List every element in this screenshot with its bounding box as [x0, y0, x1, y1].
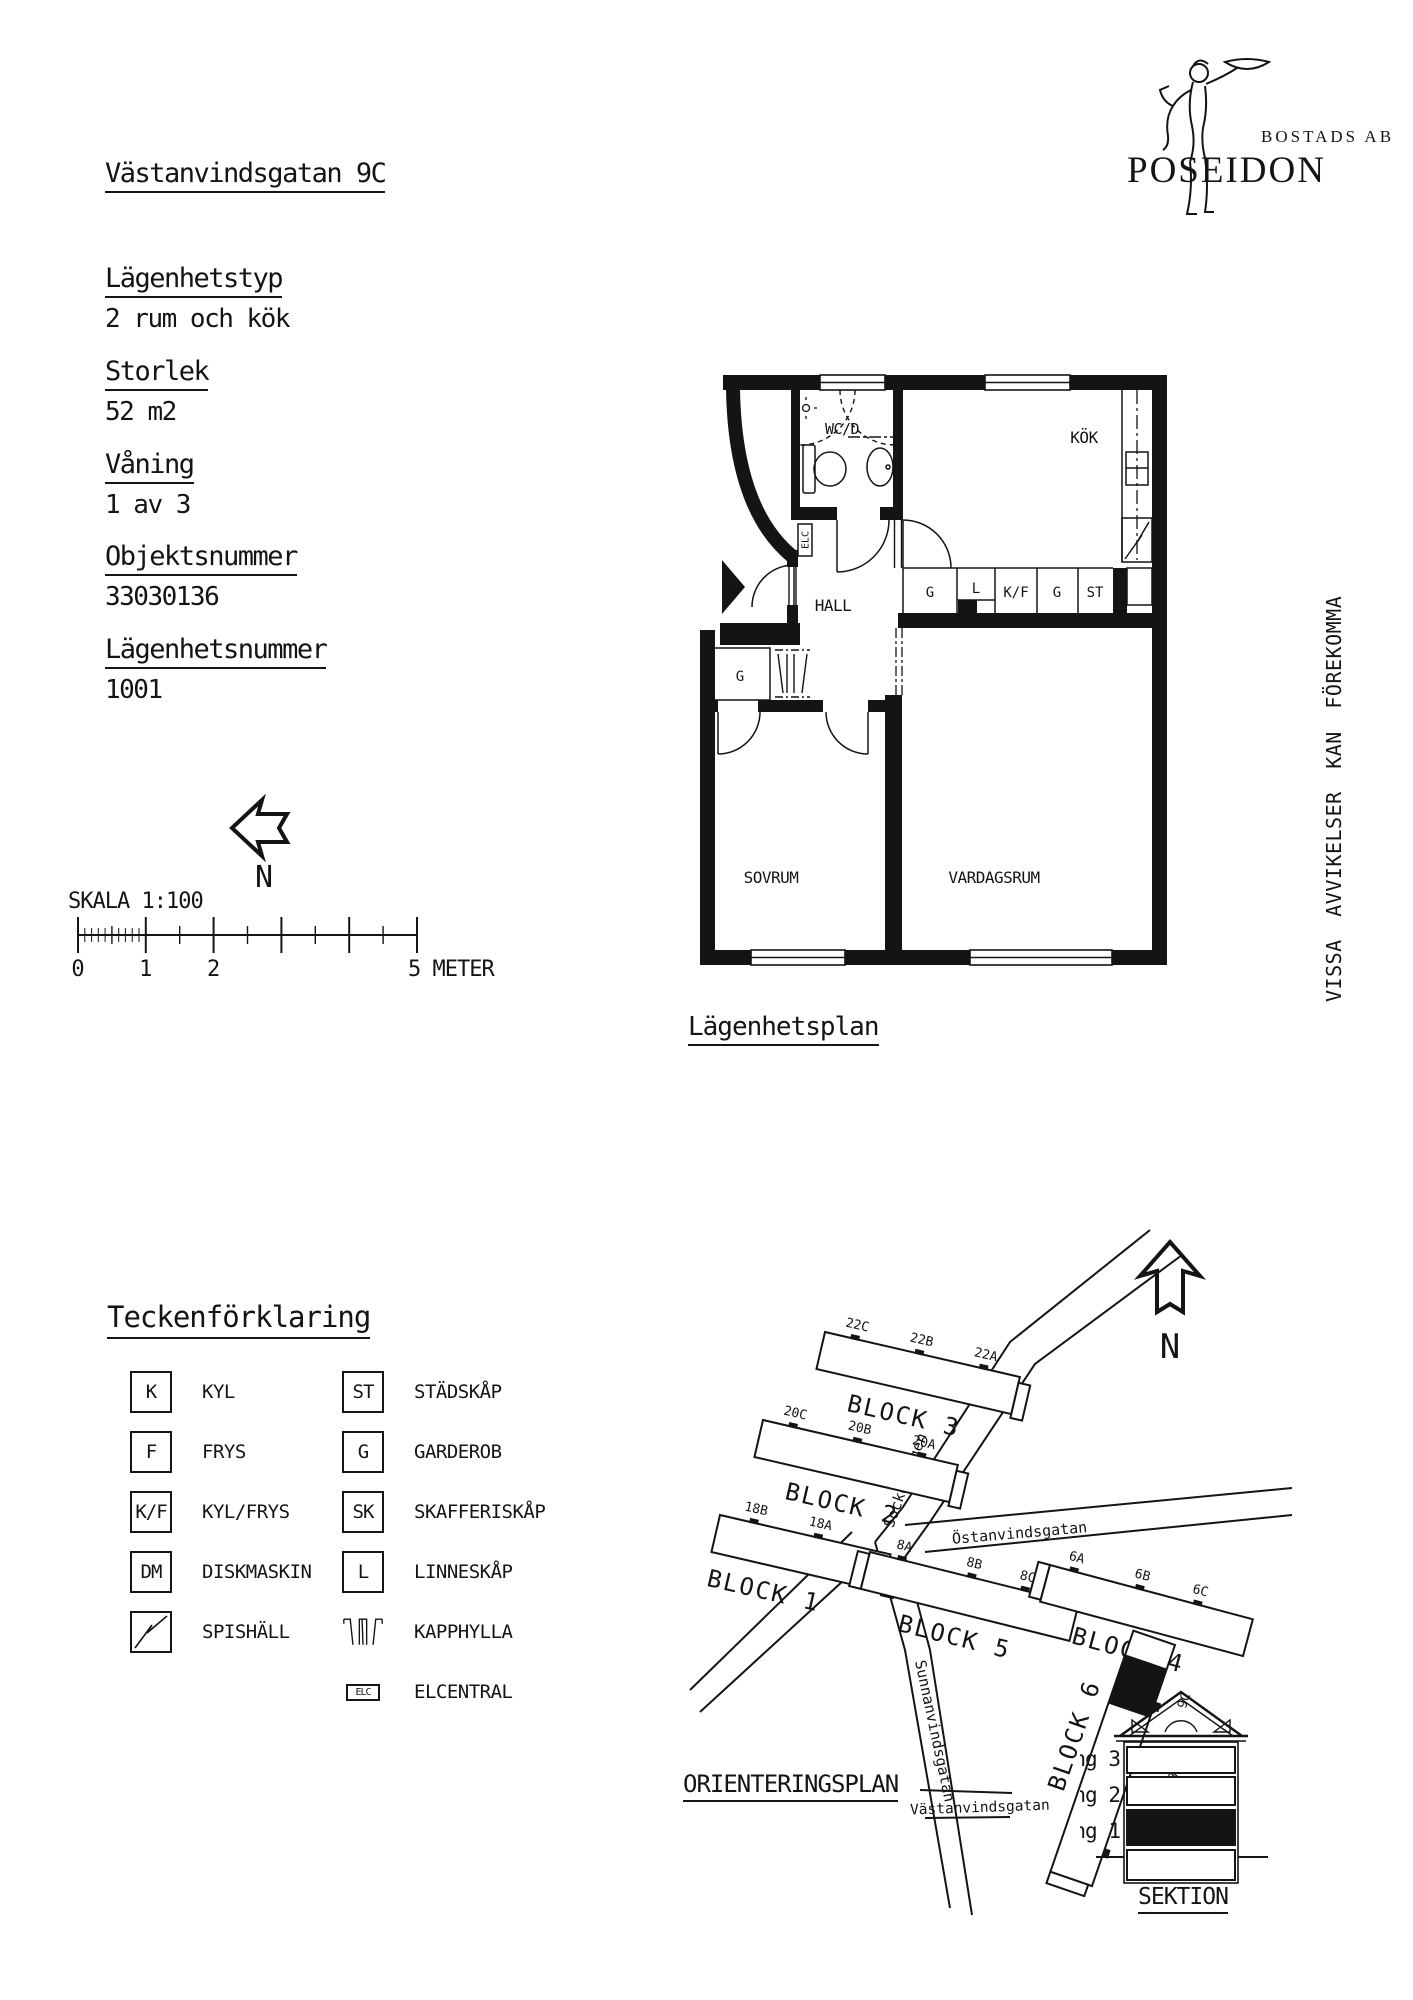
legend-item-label: SPISHÄLL [202, 1621, 290, 1643]
legend-item-label: STÄDSKÅP [414, 1381, 502, 1403]
field-label: Storlek [105, 356, 208, 391]
plan-caption-wrap: Lägenhetsplan [688, 1012, 879, 1046]
scale-bar-group: N SKALA 1:100 0 1 2 5 METER [50, 780, 520, 995]
entrance-label: 22B [908, 1330, 934, 1350]
kitchen-fittings [1122, 390, 1152, 605]
highlighted-floor-1 [1127, 1810, 1235, 1845]
section-roof [1114, 1692, 1248, 1741]
north-arrow-map-icon [1140, 1242, 1200, 1312]
elc-label: ELC [801, 531, 812, 549]
legend-key-box: G [342, 1431, 384, 1473]
entrance-label: 18B [743, 1500, 769, 1520]
legend-key-box: ST [342, 1371, 384, 1413]
field-value: 2 rum och kök [105, 304, 289, 334]
legend-item-label: LINNESKÅP [414, 1561, 512, 1583]
legend-item-label: FRYS [202, 1441, 246, 1463]
legend-item-kyl: K KYL [130, 1371, 311, 1413]
north-letter-map: N [1160, 1327, 1180, 1367]
legend-item-linneskap: L LINNESKÅP [342, 1551, 545, 1593]
entrance-label: 22A [973, 1345, 999, 1365]
curved-wall [733, 389, 793, 557]
toilet-icon [803, 445, 846, 493]
field-label: Våning [105, 449, 194, 484]
closet-label-g1: G [926, 585, 934, 601]
field-label: Lägenhetstyp [105, 263, 282, 298]
hat-shelf-icon [775, 650, 810, 697]
legend-item-stadskap: ST STÄDSKÅP [342, 1371, 545, 1413]
floor-label-1: Våning 1 [1080, 1818, 1120, 1843]
legend-key-box: K [130, 1371, 172, 1413]
entrance-label: 6C [1191, 1582, 1210, 1601]
scale-tick-5-meter: 5 METER [408, 957, 495, 982]
legend-item-garderob: G GARDEROB [342, 1431, 545, 1473]
closet-label-st: ST [1087, 585, 1104, 601]
room-label-hall: HALL [815, 596, 852, 615]
field-lagenhetstyp: Lägenhetstyp 2 rum och kök [105, 263, 289, 334]
closet-label-g2: G [1053, 585, 1061, 601]
legend-key-box: K/F [130, 1491, 172, 1533]
legend-item-label: GARDEROB [414, 1441, 502, 1463]
logo-poseidon: POSEIDON [1127, 150, 1326, 191]
address-text: Västanvindsgatan 9C [105, 158, 385, 193]
room-label-kitchen: KÖK [1070, 428, 1098, 447]
field-value: 33030136 [105, 582, 297, 612]
legend-key-box: SK [342, 1491, 384, 1533]
map-caption-wrap: ORIENTERINGSPLAN [683, 1770, 898, 1802]
section-caption-wrap: SEKTION [1138, 1884, 1228, 1914]
section-floors [1096, 1742, 1268, 1883]
room-label-living: VARDAGSRUM [948, 868, 1039, 887]
field-label: Objektsnummer [105, 541, 297, 576]
legend-item-frys: F FRYS [130, 1431, 311, 1473]
floorplan-document-page: Västanvindsgatan 9C Lägenhetstyp 2 rum o… [0, 0, 1413, 2000]
legend-item-label: ELCENTRAL [414, 1681, 512, 1703]
field-label: Lägenhetsnummer [105, 634, 326, 669]
room-label-bedroom: SOVRUM [744, 868, 799, 887]
entry-arrow-icon [722, 560, 745, 614]
field-vaning: Våning 1 av 3 [105, 449, 194, 520]
logo-bostads-ab: BOSTADS AB [1261, 127, 1394, 146]
section-caption: SEKTION [1138, 1884, 1228, 1914]
entrance-label: 6B [1133, 1567, 1152, 1586]
entrance-label: 18A [807, 1514, 833, 1534]
scale-ruler [78, 917, 417, 953]
legend-key-box: L [342, 1551, 384, 1593]
poseidon-logo: BOSTADS AB POSEIDON [1113, 46, 1413, 226]
legend-item-spishall: SPISHÄLL [130, 1611, 311, 1653]
legend-left-column: K KYL F FRYS K/F KYL/FRYS DM DISKMASKIN … [130, 1371, 311, 1671]
entrance-label: 20C [782, 1404, 808, 1424]
scale-tick-2: 2 [207, 957, 220, 982]
sink-icon [867, 448, 893, 486]
legend-item-label: KYL [202, 1381, 235, 1403]
entrance-label: 8A [895, 1537, 914, 1555]
closet-label-l: L [972, 581, 980, 597]
field-value: 52 m2 [105, 397, 208, 427]
disclaimer-note: VISSA AVVIKELSER KAN FÖREKOMMA [1322, 634, 1346, 1002]
field-value: 1001 [105, 675, 326, 705]
field-storlek: Storlek 52 m2 [105, 356, 208, 427]
stove-symbol-icon [130, 1611, 172, 1653]
field-lagenhetsnummer: Lägenhetsnummer 1001 [105, 634, 326, 705]
map-block-3: 22C 22B 22A BLOCK 3 [807, 1312, 1036, 1456]
map-caption: ORIENTERINGSPLAN [683, 1770, 898, 1802]
entrance-label: 22C [844, 1316, 870, 1336]
legend-item-label: SKAFFERISKÅP [414, 1501, 545, 1523]
room-label-wc: WC/D [825, 420, 860, 438]
entrance-label: 8B [965, 1555, 984, 1573]
legend-item-label: KYL/FRYS [202, 1501, 290, 1523]
opening-marks [896, 628, 902, 695]
kitchen-sink-icon [1126, 452, 1148, 485]
field-value: 1 av 3 [105, 490, 194, 520]
hat-shelf-symbol-icon [342, 1611, 384, 1653]
field-objektsnummer: Objektsnummer 33030136 [105, 541, 297, 612]
legend-item-kapphylla: KAPPHYLLA [342, 1611, 545, 1653]
legend-item-label: DISKMASKIN [202, 1561, 311, 1583]
scale-tick-1: 1 [139, 957, 152, 982]
wc-interior [795, 390, 903, 493]
legend-key-box: F [130, 1431, 172, 1473]
floor-label-2: Våning 2 [1080, 1782, 1120, 1807]
north-arrow-plan-icon [232, 800, 287, 856]
scale-label: SKALA 1:100 [68, 889, 203, 914]
entrance-label: 6A [1067, 1549, 1086, 1568]
floor-label-3: Våning 3 [1080, 1746, 1120, 1771]
legend-item-elcentral: ELC ELCENTRAL [342, 1671, 545, 1713]
elc-symbol: ELC [342, 1671, 384, 1713]
legend-item-diskmaskin: DM DISKMASKIN [130, 1551, 311, 1593]
legend-item-kylfrys: K/F KYL/FRYS [130, 1491, 311, 1533]
legend-key-box: DM [130, 1551, 172, 1593]
floor-plan: ELC WC/D KÖK HALL SOVRUM VARDAGSRUM G L … [690, 345, 1180, 975]
plan-caption: Lägenhetsplan [688, 1012, 879, 1046]
north-letter-plan: N [255, 860, 273, 895]
legend-right-column: ST STÄDSKÅP G GARDEROB SK SKAFFERISKÅP L… [342, 1371, 545, 1731]
elc-symbol-text: ELC [346, 1684, 380, 1701]
legend-item-label: KAPPHYLLA [414, 1621, 512, 1643]
scale-tick-0: 0 [71, 957, 84, 982]
closet-label-kf: K/F [1003, 585, 1028, 601]
legend-title: Teckenförklaring [107, 1300, 370, 1339]
closet-label-hall-g: G [736, 669, 744, 685]
address-title: Västanvindsgatan 9C [105, 158, 385, 193]
legend-title-wrap: Teckenförklaring [107, 1300, 370, 1339]
legend-item-skafferiskap: SK SKAFFERISKÅP [342, 1491, 545, 1533]
